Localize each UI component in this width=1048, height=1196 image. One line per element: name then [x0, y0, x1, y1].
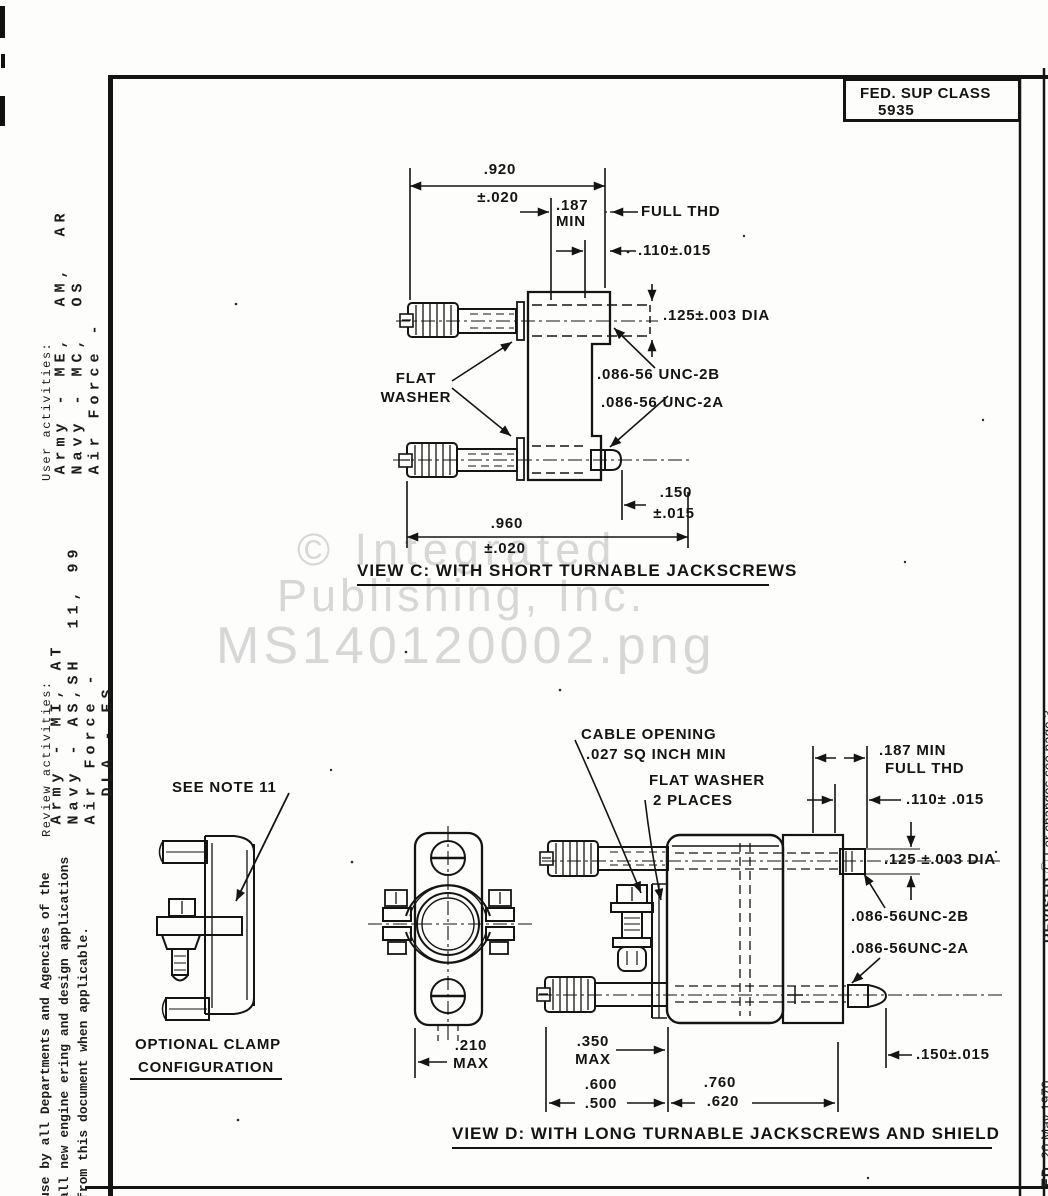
review-activities-list: Army - MI, AT Navy - AS,SH 11, 99 Air Fo…: [49, 506, 117, 825]
flat-washer-2places-label-2: 2 PLACES: [653, 792, 733, 809]
view-c-drawing: [393, 168, 690, 548]
dim-500-label: .500: [576, 1095, 626, 1112]
thread-2a-label: .086-56 UNC-2A: [601, 394, 724, 411]
dim-150-tolerance: ±.015: [644, 505, 704, 522]
dim-960-label: .960: [472, 515, 542, 532]
dim-210-label: .210: [447, 1037, 495, 1054]
thread-2a-label-d: .086-56UNC-2A: [851, 940, 969, 957]
dim-150-label: .150: [648, 484, 704, 501]
revised-word: REVISED: [1041, 877, 1048, 943]
scanned-standard-sheet: © Integrated Publishing, Inc. MS14012000…: [0, 0, 1048, 1196]
date-note: ED 20 May 1970: [1024, 1032, 1044, 1196]
dim-187-label: .187: [556, 197, 588, 214]
view-d-caption: VIEW D: WITH LONG TURNABLE JACKSCREWS AN…: [452, 1124, 992, 1149]
date-text: 20 May 1970: [1039, 1081, 1048, 1167]
cable-opening-label-1: CABLE OPENING: [581, 726, 716, 743]
fed-sup-class-value: 5935: [878, 102, 915, 119]
see-note-11-label: SEE NOTE 11: [172, 779, 277, 796]
optional-clamp-label-1: OPTIONAL CLAMP: [124, 1036, 292, 1053]
clamp-front-view: [368, 826, 532, 1044]
fed-sup-class-box: FED. SUP CLASS 5935: [843, 78, 1021, 122]
user-activities-list: Army - ME, AM, AR Navy - MC, OS Air Forc…: [53, 185, 104, 475]
thread-2b-label-d: .086-56UNC-2B: [851, 908, 969, 925]
dim-110-label: .110±.015: [638, 242, 711, 259]
fed-sup-class-label: FED. SUP CLASS: [860, 85, 991, 102]
flat-washer-label-1: FLAT: [388, 370, 444, 387]
dim-110-label-d: .110± .015: [906, 791, 984, 808]
cable-opening-label-2: .027 SQ INCH MIN: [586, 746, 726, 763]
dim-187-min-full-thd-2: FULL THD: [885, 760, 964, 777]
dim-920-tolerance: ±.020: [450, 189, 546, 206]
revised-text: Ⓒ For changes see page 3: [1041, 710, 1048, 877]
full-thd-label: FULL THD: [641, 203, 720, 220]
dim-960-tolerance: ±.020: [468, 540, 542, 557]
revised-note: REVISED Ⓒ For changes see page 3: [1022, 652, 1042, 958]
dim-920-label: .920: [452, 161, 548, 178]
dim-125-dia-label: .125±.003 DIA: [663, 307, 770, 324]
flat-washer-label-2: WASHER: [374, 389, 458, 406]
thread-2b-label: .086-56 UNC-2B: [597, 366, 720, 383]
dim-350-label: .350: [568, 1033, 618, 1050]
sheet-frame: [85, 68, 1048, 1196]
dim-350-max-label: MAX: [568, 1051, 618, 1068]
dim-620-label: .620: [698, 1093, 748, 1110]
dim-125-dia-label-d: .125 ±.003 DIA: [884, 851, 996, 868]
date-word: ED: [1039, 1166, 1048, 1187]
optional-clamp-label-2: CONFIGURATION: [130, 1059, 282, 1080]
dim-187-min-full-thd-1: .187 MIN: [879, 742, 946, 759]
view-c-caption: VIEW C: WITH SHORT TURNABLE JACKSCREWS: [357, 561, 769, 586]
clamp-side-view: [157, 836, 254, 1020]
usage-note: use by all Departments and Agencies of t…: [36, 865, 93, 1196]
dim-150-label-d: .150±.015: [916, 1046, 990, 1063]
flat-washer-2places-label-1: FLAT WASHER: [649, 772, 765, 789]
dim-210-max-label: MAX: [447, 1055, 495, 1072]
dim-760-label: .760: [695, 1074, 745, 1091]
drawing-linework: [0, 0, 1048, 1196]
dim-600-label: .600: [576, 1076, 626, 1093]
dim-187-min-label: MIN: [556, 213, 586, 230]
